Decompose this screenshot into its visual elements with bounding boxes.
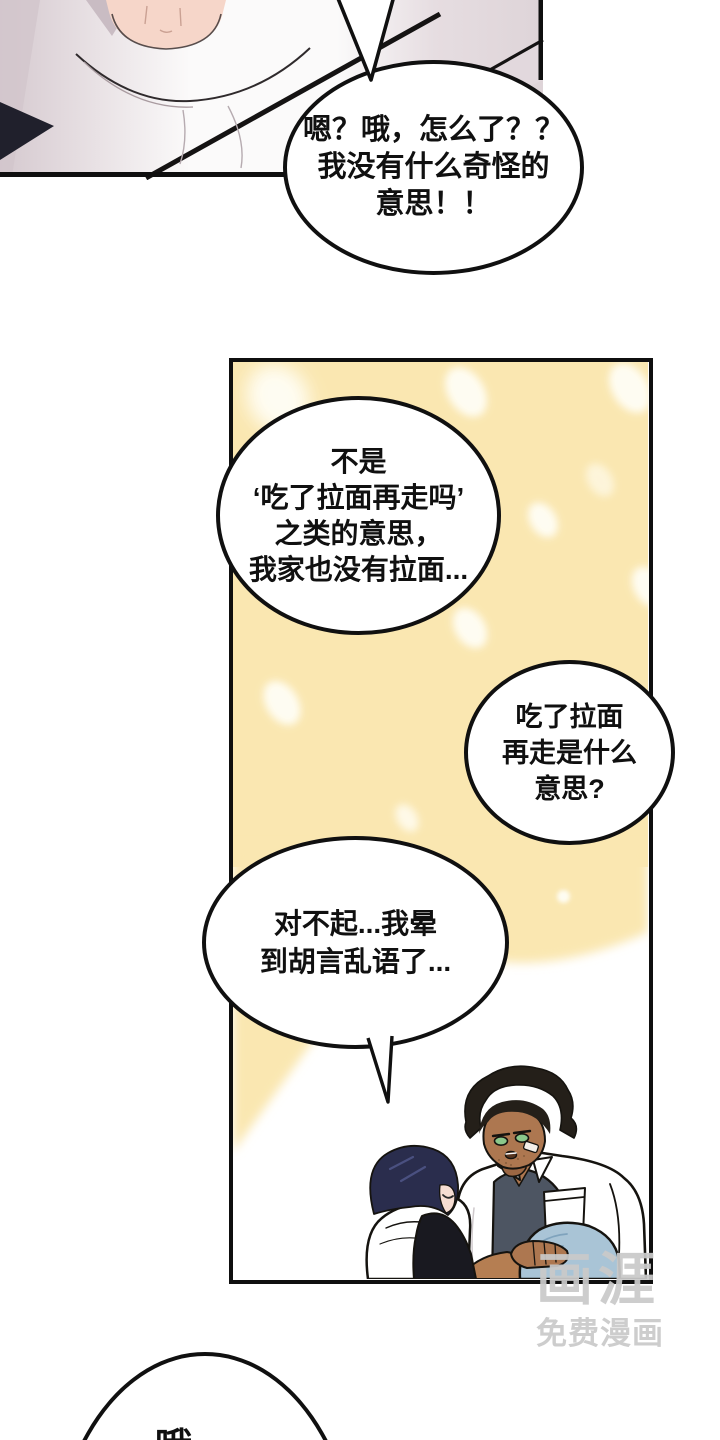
bubble-line: 吃了拉面 [516, 699, 624, 735]
bubble-line: ‘吃了拉面再走吗’ [253, 480, 465, 516]
man-eye [495, 1137, 508, 1145]
boy-figure [367, 1146, 476, 1279]
bubble-line: 我没有什么奇怪的 [317, 149, 549, 186]
speech-bubble-3: 吃了拉面 再走是什么 意思? [464, 660, 675, 845]
bubble-line: 嗯？哦，怎么了？？ [303, 112, 564, 149]
speech-bubble-1: 嗯？哦，怎么了？？ 我没有什么奇怪的 意思！！ [283, 60, 584, 275]
site-watermark: 画涯 免费漫画 [536, 1252, 664, 1349]
bubble-line: 对不起...我晕 [274, 905, 437, 943]
comic-page: 嗯？哦，怎么了？？ 我没有什么奇怪的 意思！！ 不是 ‘吃了拉面再走吗’ 之类的… [0, 0, 720, 1440]
watermark-logo: 画涯 [536, 1252, 664, 1309]
speech-bubble-2: 不是 ‘吃了拉面再走吗’ 之类的意思， 我家也没有拉面... [216, 396, 501, 635]
watermark-tagline: 免费漫画 [536, 1318, 664, 1349]
bubble-line: 再走是什么 [502, 735, 637, 771]
speech-bubble-4: 对不起...我晕 到胡言乱语了... [202, 836, 509, 1049]
panel-top-right-border [539, 0, 544, 80]
bubble5-partial-text: 哦 [155, 1426, 201, 1440]
bubble-line: 我家也没有拉面... [249, 552, 468, 588]
bubble-line: 之类的意思， [274, 516, 442, 552]
bubble-line: 哦 [155, 1428, 201, 1440]
bubble-line: 意思? [534, 771, 605, 807]
characters-art [360, 1056, 647, 1279]
bubble-line: 到胡言乱语了... [260, 943, 451, 981]
speech-bubble-5-partial [52, 1352, 358, 1440]
bubble-line: 不是 [330, 444, 386, 480]
bubble-line: 意思！！ [375, 186, 491, 223]
